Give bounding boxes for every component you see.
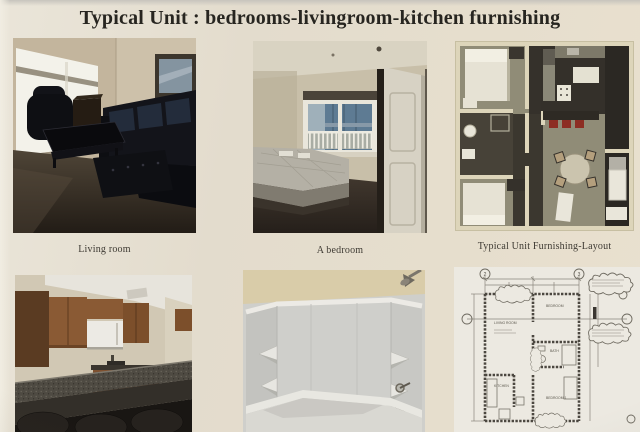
- caption-layout: Typical Unit Furnishing-Layout: [455, 241, 634, 252]
- bottom-right-table: [606, 207, 627, 220]
- label-living-room: LIVING ROOM: [494, 321, 517, 325]
- dining-set: [554, 150, 597, 188]
- section-marker: [593, 307, 597, 319]
- living-room-illustration: [13, 38, 196, 233]
- smoke-detector: [377, 47, 382, 52]
- paper-left-margin: [0, 0, 10, 432]
- photographed-flyer-page: Typical Unit : bedrooms-livingroom-kitch…: [0, 0, 640, 432]
- window: [300, 91, 380, 157]
- layout-illustration: [455, 41, 634, 231]
- grid-bubble-3: 3: [578, 272, 581, 278]
- kitchen-photo: [15, 275, 192, 432]
- ceiling-light: [332, 54, 335, 57]
- label-bath: BATH: [550, 349, 559, 353]
- cad-illustration: 2 3 LIVING ROOM: [454, 267, 640, 432]
- label-bedroom-lower: BEDROOM 1: [546, 396, 566, 400]
- shower-photo: [243, 270, 425, 432]
- microwave: [87, 321, 123, 350]
- caption-bedroom: A bedroom: [253, 245, 427, 256]
- far-right-cabinet: [175, 309, 192, 331]
- kitchen-illustration: [15, 275, 192, 432]
- caption-living-room: Living room: [13, 244, 196, 255]
- door: [377, 67, 427, 233]
- left-cabinet: [15, 291, 49, 367]
- living-room-photo: [13, 38, 196, 233]
- bathroom-floor: [460, 113, 513, 175]
- mattress: [253, 147, 349, 215]
- bedroom-closet: [529, 46, 541, 114]
- paper-top-shadow: [0, 0, 640, 6]
- washer-unit: [609, 157, 626, 200]
- page-title: Typical Unit : bedrooms-livingroom-kitch…: [0, 7, 640, 30]
- ottoman-chaise: [93, 150, 173, 198]
- furnishing-layout-render: [455, 41, 634, 231]
- cad-floor-plan: 2 3 LIVING ROOM: [454, 267, 640, 432]
- label-bedroom-upper: BEDROOM: [546, 304, 564, 308]
- bedroom-photo: [253, 41, 427, 233]
- bedroom-illustration: [253, 41, 427, 233]
- label-kitchen: KITCHEN: [494, 384, 509, 388]
- cube-side-table: [73, 94, 103, 128]
- grid-bubble-2: 2: [484, 272, 487, 278]
- shower-illustration: [243, 270, 425, 432]
